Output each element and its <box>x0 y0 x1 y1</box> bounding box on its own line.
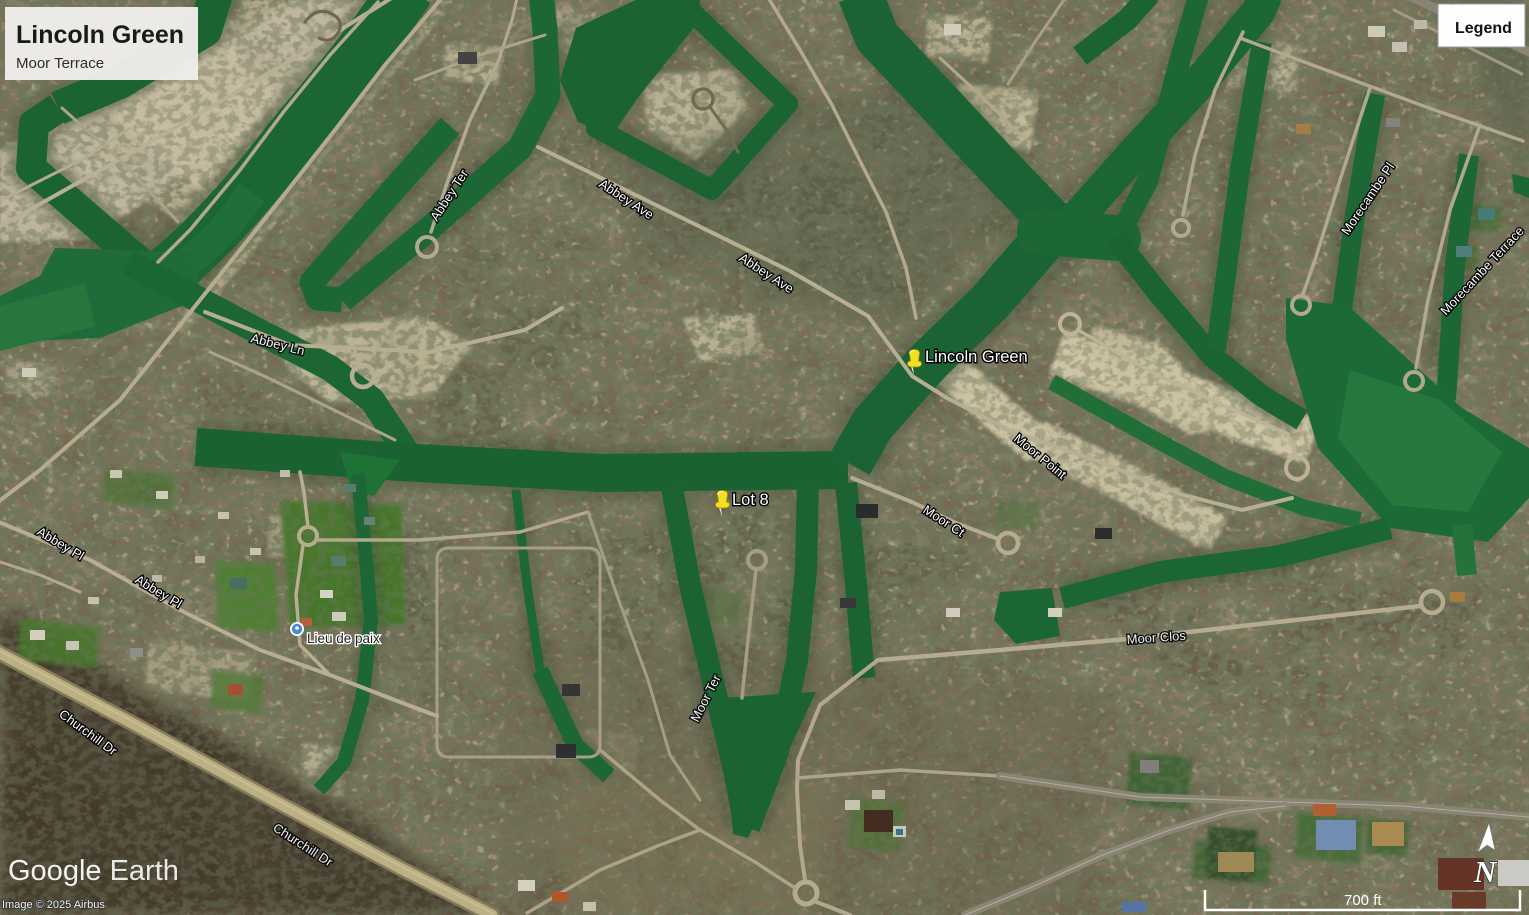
svg-text:Google Earth: Google Earth <box>8 855 179 887</box>
svg-text:Lot 8: Lot 8 <box>732 491 769 509</box>
svg-text:Moor Terrace: Moor Terrace <box>16 55 104 72</box>
svg-text:Image © 2025 Airbus: Image © 2025 Airbus <box>2 899 105 911</box>
svg-text:Lieu de paix: Lieu de paix <box>307 631 380 646</box>
svg-text:Lincoln Green: Lincoln Green <box>925 348 1028 366</box>
svg-text:N: N <box>1473 854 1498 889</box>
svg-text:700 ft: 700 ft <box>1344 892 1382 909</box>
svg-text:Legend: Legend <box>1455 20 1512 37</box>
svg-text:Lincoln Green: Lincoln Green <box>16 21 184 49</box>
